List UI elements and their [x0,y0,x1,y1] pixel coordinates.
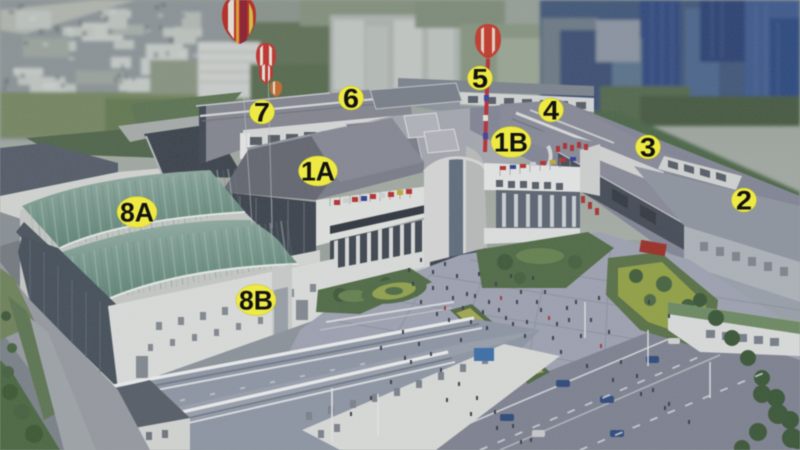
svg-text:8B: 8B [239,286,273,316]
svg-text:1A: 1A [301,157,335,187]
svg-text:1B: 1B [494,128,528,158]
svg-text:5: 5 [472,64,488,94]
svg-text:2: 2 [736,186,752,216]
svg-text:7: 7 [254,98,270,128]
svg-text:6: 6 [343,84,359,114]
svg-text:8A: 8A [120,198,154,228]
svg-text:4: 4 [543,96,559,126]
svg-text:3: 3 [640,133,656,163]
